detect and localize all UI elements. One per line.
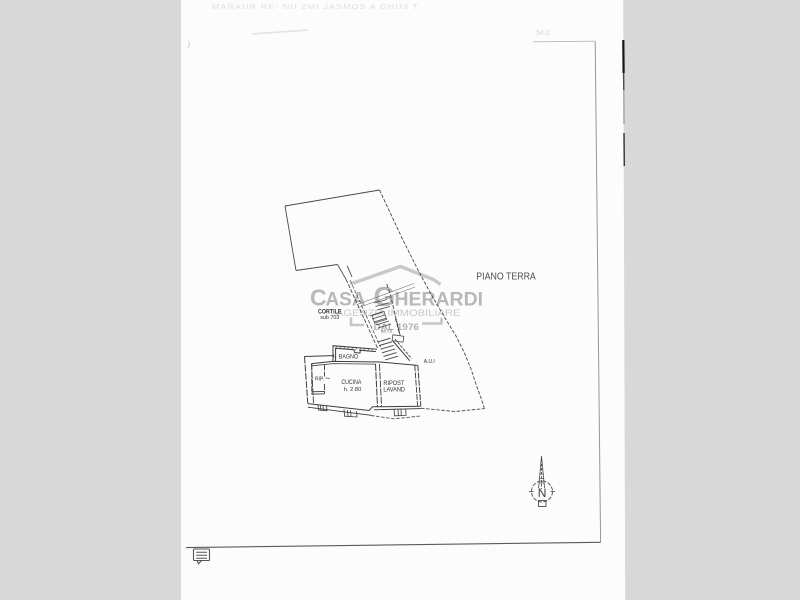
svg-text:LAVAND: LAVAND — [383, 387, 405, 394]
svg-text:h. 2.80: h. 2.80 — [344, 387, 362, 393]
svg-text:BAGNO: BAGNO — [339, 355, 358, 361]
svg-text:C: C — [310, 284, 327, 310]
svg-text:sub 703: sub 703 — [381, 328, 393, 333]
svg-text:54.0: 54.0 — [536, 30, 550, 37]
svg-text:RIP.: RIP. — [315, 377, 324, 383]
svg-text:N: N — [538, 486, 547, 500]
svg-text:A.U.I: A.U.I — [424, 359, 435, 365]
svg-text:CUCINA: CUCINA — [341, 379, 362, 386]
svg-text:sub 703: sub 703 — [320, 315, 339, 321]
svg-text:MARAUR RE- NU 2MI JASMOS A GHU: MARAUR RE- NU 2MI JASMOS A GHU3 T — [212, 2, 419, 11]
svg-text:PIANO TERRA: PIANO TERRA — [476, 271, 536, 282]
